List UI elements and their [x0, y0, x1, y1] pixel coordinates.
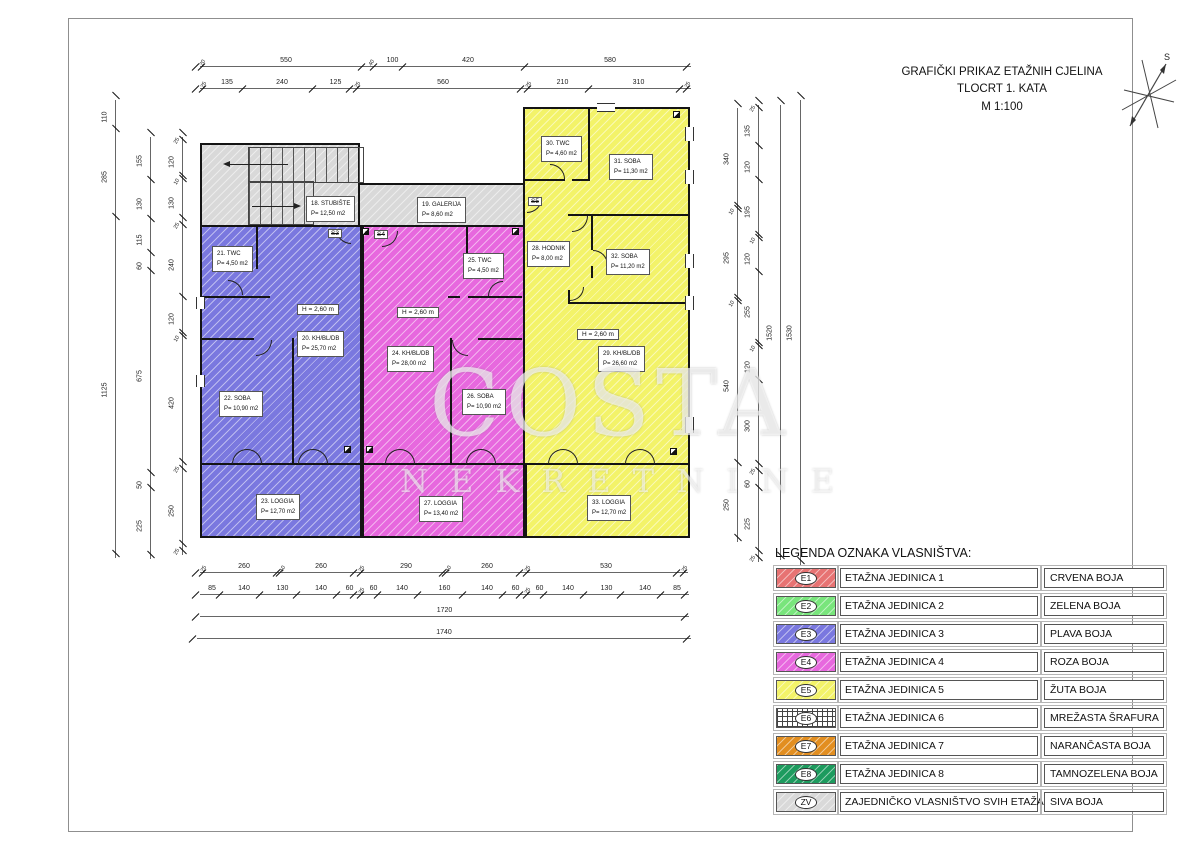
dimension-line: 2055040100420580 [200, 66, 691, 67]
legend-unit-label: ETAŽNA JEDINICA 5 [840, 680, 1038, 700]
dimension-line: 1102851125 [115, 100, 116, 558]
legend-unit-label: ETAŽNA JEDINICA 6 [840, 708, 1038, 728]
dimension-line: 252601026025290102602553025 [200, 572, 688, 573]
height-label: H = 2,60 m [397, 307, 439, 318]
dimension-value: 540 [724, 380, 731, 392]
legend-color-label: TAMNOZELENA BOJA [1044, 764, 1164, 784]
stair-direction-arrow [294, 203, 301, 209]
dimension-line: 1720 [200, 616, 689, 617]
legend-swatch: E5 [776, 680, 836, 700]
stair-direction-line [252, 206, 294, 207]
dimension-value: 580 [604, 57, 616, 64]
wall [448, 296, 460, 298]
height-label: H = 2,60 m [577, 329, 619, 340]
dimension-line: 1740 [197, 638, 691, 639]
dimension-value: 1740 [436, 629, 452, 636]
wall [468, 296, 522, 298]
dimension-value: 1530 [787, 325, 794, 341]
room-label-soba-31: 31. SOBAP= 11,30 m2 [609, 154, 653, 180]
room-label-soba-32: 32. SOBAP= 11,20 m2 [606, 249, 650, 275]
room-label-stubiste: 18. STUBIŠTEP= 12,50 m2 [306, 196, 355, 222]
entrance-tag-s3: S3 [328, 229, 342, 238]
dimension-value: 240 [169, 259, 176, 271]
dimension-value: 260 [315, 563, 327, 570]
stair-treads-lower [248, 181, 314, 225]
legend-swatch: E3 [776, 624, 836, 644]
dimension-value: 60 [536, 585, 544, 592]
room-label-kh-20: 20. KH/BL/DBP= 25,70 m2 [297, 331, 344, 357]
north-arrow-icon: S [1112, 48, 1184, 136]
dimension-value: 130 [601, 585, 613, 592]
dimension-value: 140 [481, 585, 493, 592]
room-label-loggia-23: 23. LOGGIAP= 12,70 m2 [256, 494, 300, 520]
entrance-tag-s5: S5 [528, 197, 542, 206]
legend-code-badge: E1 [795, 572, 817, 585]
dimension-value: 1720 [437, 607, 453, 614]
dimension-value: 675 [137, 370, 144, 382]
legend-title: LEGENDA OZNAKA VLASNIŠTVA: [775, 546, 971, 560]
legend-code-badge: E6 [795, 712, 817, 725]
room-label-twc-25: 25. TWCP= 4,50 m2 [463, 253, 504, 279]
dimension-value: 140 [396, 585, 408, 592]
legend-swatch: E2 [776, 596, 836, 616]
room-label-soba-26: 26. SOBAP= 10,90 m2 [462, 389, 506, 415]
dimension-value: 120 [169, 313, 176, 325]
dimension-value: 560 [437, 79, 449, 86]
dimension-value: 260 [481, 563, 493, 570]
window [196, 297, 205, 309]
wall [591, 216, 593, 250]
dimension-line: 251351201951012025510120300256022525 [758, 105, 759, 562]
level-marker-icon [670, 448, 677, 455]
title-block: GRAFIČKI PRIKAZ ETAŽNIH CJELINA TLOCRT 1… [872, 64, 1132, 116]
stair-direction-arrow [223, 161, 230, 167]
legend-color-label: PLAVA BOJA [1044, 624, 1164, 644]
dimension-value: 60 [745, 480, 752, 488]
dimension-value: 140 [562, 585, 574, 592]
wall [588, 109, 590, 181]
room-label-twc-21: 21. TWCP= 4,50 m2 [212, 246, 253, 272]
legend-code-badge: E8 [795, 768, 817, 781]
window [685, 417, 694, 433]
legend-code-badge: E5 [795, 684, 817, 697]
drawing-title-line2: TLOCRT 1. KATA [872, 81, 1132, 98]
legend-color-label: CRVENA BOJA [1044, 568, 1164, 588]
dimension-value: 250 [724, 499, 731, 511]
level-marker-icon [673, 111, 680, 118]
wall [450, 338, 452, 463]
dimension-value: 125 [330, 79, 342, 86]
dimension-value: 130 [277, 585, 289, 592]
dimension-value: 255 [745, 306, 752, 318]
legend-unit-label: ETAŽNA JEDINICA 1 [840, 568, 1038, 588]
legend-unit-label: ETAŽNA JEDINICA 2 [840, 596, 1038, 616]
legend-color-label: SIVA BOJA [1044, 792, 1164, 812]
dimension-value: 340 [724, 153, 731, 165]
legend-swatch: E7 [776, 736, 836, 756]
dimension-value: 140 [238, 585, 250, 592]
dimension-line: 8514013014060256014016014060256014013014… [200, 594, 689, 595]
dimension-value: 210 [557, 79, 569, 86]
stair-direction-line [230, 164, 288, 165]
dimension-value: 120 [745, 361, 752, 373]
level-marker-icon [512, 228, 519, 235]
room-label-twc-30: 30. TWCP= 4,60 m2 [541, 136, 582, 162]
wall [478, 338, 522, 340]
wall [591, 266, 593, 278]
legend-code-badge: ZV [795, 796, 818, 809]
dimension-line: 1551301156067550225 [150, 137, 151, 559]
dimension-value: 155 [137, 155, 144, 167]
dimension-value: 240 [276, 79, 288, 86]
dimension-value: 50 [137, 481, 144, 489]
legend-swatch: E8 [776, 764, 836, 784]
dimension-value: 120 [745, 161, 752, 173]
legend-unit-label: ETAŽNA JEDINICA 7 [840, 736, 1038, 756]
dimension-value: 300 [745, 420, 752, 432]
dimension-value: 60 [512, 585, 520, 592]
legend-code-badge: E3 [795, 628, 817, 641]
dimension-value: 310 [633, 79, 645, 86]
stair-treads-upper [248, 147, 364, 183]
level-marker-icon [344, 446, 351, 453]
dimension-value: 160 [439, 585, 451, 592]
level-marker-icon [362, 228, 369, 235]
wall [292, 338, 294, 463]
legend-code-badge: E2 [795, 600, 817, 613]
legend-code-badge: E4 [795, 656, 817, 669]
dimension-line: 25135240125255602521031025 [200, 88, 691, 89]
dimension-value: 60 [370, 585, 378, 592]
wall [202, 338, 254, 340]
dimension-value: 85 [673, 585, 681, 592]
drawing-sheet: GRAFIČKI PRIKAZ ETAŽNIH CJELINA TLOCRT 1… [0, 0, 1200, 849]
legend-color-label: ZELENA BOJA [1044, 596, 1164, 616]
dimension-value: 250 [169, 505, 176, 517]
wall [568, 302, 688, 304]
legend-unit-label: ETAŽNA JEDINICA 3 [840, 624, 1038, 644]
dimension-value: 135 [745, 125, 752, 137]
legend-unit-label: ETAŽNA JEDINICA 4 [840, 652, 1038, 672]
dimension-value: 120 [169, 156, 176, 168]
room-label-loggia-27: 27. LOGGIAP= 13,40 m2 [419, 496, 463, 522]
dimension-value: 195 [745, 206, 752, 218]
north-letter: S [1164, 52, 1170, 62]
legend-color-label: ŽUTA BOJA [1044, 680, 1164, 700]
dimension-value: 225 [137, 520, 144, 532]
drawing-scale: M 1:100 [872, 99, 1132, 116]
height-label: H = 2,60 m [297, 304, 339, 315]
dimension-value: 1125 [102, 382, 109, 397]
dimension-value: 110 [102, 111, 109, 122]
wall [256, 227, 258, 269]
legend-color-label: MREŽASTA ŠRAFURA [1044, 708, 1164, 728]
dimension-value: 260 [238, 563, 250, 570]
dimension-value: 225 [745, 518, 752, 530]
legend-unit-label: ETAŽNA JEDINICA 8 [840, 764, 1038, 784]
legend-unit-label: ZAJEDNIČKO VLASNIŠTVO SVIH ETAŽA [840, 792, 1038, 812]
dimension-value: 285 [102, 171, 109, 183]
wall [202, 296, 258, 298]
dimension-value: 120 [745, 253, 752, 265]
dimension-line: 251201013025240120104202525025 [182, 137, 183, 555]
legend-swatch: ZV [776, 792, 836, 812]
window [685, 296, 694, 310]
dimension-value: 550 [280, 57, 292, 64]
dimension-value: 290 [400, 563, 412, 570]
wall [572, 179, 590, 181]
window [597, 103, 615, 112]
dimension-value: 60 [137, 262, 144, 270]
legend-color-label: ROZA BOJA [1044, 652, 1164, 672]
room-label-galerija: 19. GALERIJAP= 8,60 m2 [417, 197, 466, 223]
dimension-value: 420 [169, 397, 176, 409]
legend-code-badge: E7 [795, 740, 817, 753]
drawing-title-line1: GRAFIČKI PRIKAZ ETAŽNIH CJELINA [872, 64, 1132, 81]
dimension-value: 130 [169, 197, 176, 209]
legend-swatch: E6 [776, 708, 836, 728]
level-marker-icon [366, 446, 373, 453]
dimension-line: 3401029510540250 [737, 108, 738, 542]
room-label-loggia-33: 33. LOGGIAP= 12,70 m2 [587, 495, 631, 521]
dimension-value: 420 [462, 57, 474, 64]
wall [525, 179, 565, 181]
dimension-value: 140 [315, 585, 327, 592]
dimension-value: 1520 [767, 325, 774, 341]
dimension-value: 100 [387, 57, 399, 64]
room-label-kh-29: 29. KH/BL/DBP= 26,60 m2 [598, 346, 645, 372]
room-label-hodnik-28: 28. HODNIKP= 8,00 m2 [527, 241, 570, 267]
legend-swatch: E4 [776, 652, 836, 672]
window [685, 127, 694, 141]
dimension-value: 130 [137, 198, 144, 210]
wall [258, 296, 270, 298]
dimension-value: 295 [724, 252, 731, 264]
dimension-value: 140 [639, 585, 651, 592]
window [196, 375, 205, 387]
dimension-value: 115 [137, 234, 144, 245]
dimension-value: 85 [208, 585, 216, 592]
window [685, 170, 694, 184]
entrance-tag-s4: S4 [374, 230, 388, 239]
dimension-value: 60 [346, 585, 354, 592]
dimension-line: 1520 [780, 105, 781, 560]
dimension-value: 135 [221, 79, 233, 86]
room-label-kh-24: 24. KH/BL/DBP= 28,00 m2 [387, 346, 434, 372]
legend-swatch: E1 [776, 568, 836, 588]
room-label-soba-22: 22. SOBAP= 10,90 m2 [219, 391, 263, 417]
window [685, 254, 694, 268]
dimension-value: 530 [600, 563, 612, 570]
dimension-line: 1530 [800, 100, 801, 565]
legend-color-label: NARANČASTA BOJA [1044, 736, 1164, 756]
